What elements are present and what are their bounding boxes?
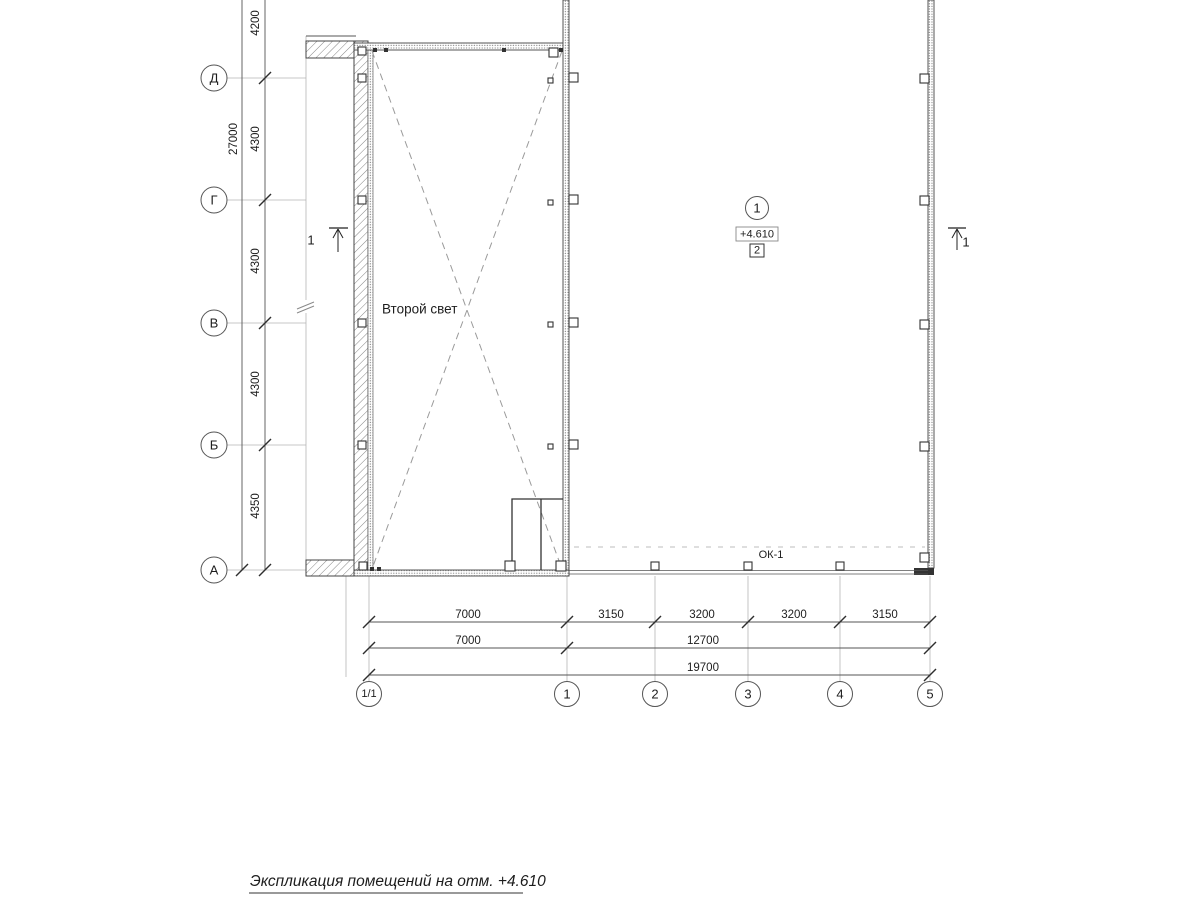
wall-right	[928, 0, 934, 568]
axis-label-1-1: 1/1	[361, 688, 376, 700]
room-tag-number: 1	[753, 201, 760, 216]
dim-3200-b: 3200	[781, 609, 807, 621]
second-light-label: Второй свет	[382, 302, 457, 317]
wall-bottom-left	[306, 560, 354, 576]
axis-label-v: В	[210, 316, 219, 331]
axis-label-5: 5	[926, 687, 933, 702]
dim-12700: 12700	[687, 635, 719, 647]
wall-bottom	[354, 570, 569, 576]
dim-27000: 27000	[228, 123, 240, 155]
axis-label-b: Б	[210, 438, 219, 453]
axis-label-a: А	[210, 563, 219, 578]
window-mark-label: ОК-1	[759, 549, 784, 561]
dim-3200-a: 3200	[689, 609, 715, 621]
wall-left	[354, 41, 368, 573]
room-tag-index: 2	[754, 245, 760, 257]
dim-4200: 4200	[250, 10, 262, 36]
axis-label-3: 3	[744, 687, 751, 702]
dim-7000-r2: 7000	[455, 635, 481, 647]
axis-label-1: 1	[563, 687, 570, 702]
axis-label-d: Д	[210, 71, 219, 86]
section-label-left: 1	[307, 233, 314, 248]
floor-plan: Д Г В Б А 1/1 1 2 3 4 5 4200 4300 4300 4…	[0, 0, 1200, 900]
axis-label-2: 2	[651, 687, 658, 702]
break-symbol	[296, 300, 317, 313]
dim-4300-c: 4300	[250, 371, 262, 397]
dim-4350: 4350	[250, 493, 262, 519]
wall-top-left	[306, 41, 354, 58]
axis-label-4: 4	[836, 687, 843, 702]
paper-background	[0, 0, 1200, 900]
dim-4300-a: 4300	[250, 126, 262, 152]
dim-4300-b: 4300	[250, 248, 262, 274]
dim-3150-a: 3150	[598, 609, 624, 621]
dim-19700: 19700	[687, 662, 719, 674]
room-tag-elevation: +4.610	[740, 229, 774, 241]
title-text: Экспликация помещений на отм. +4.610	[250, 873, 546, 890]
wall-room-right	[563, 0, 569, 576]
section-label-right: 1	[962, 235, 969, 250]
dim-3150-b: 3150	[872, 609, 898, 621]
axis-label-g: Г	[210, 193, 217, 208]
dim-7000-r1: 7000	[455, 609, 481, 621]
